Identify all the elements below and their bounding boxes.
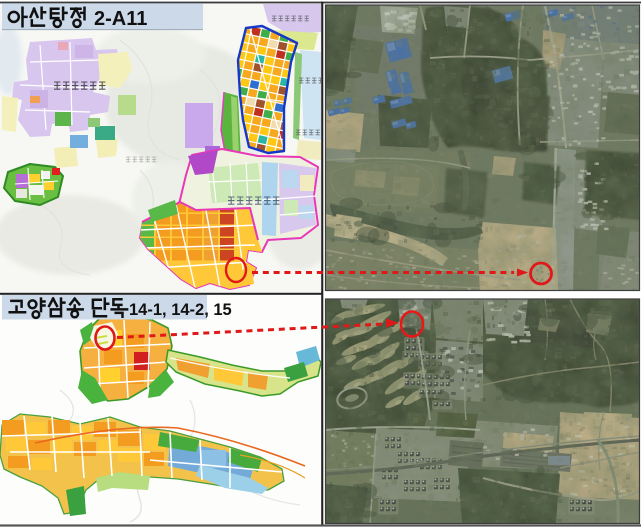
svg-text:2-A11: 2-A11 [94,8,147,30]
svg-text:14-1, 14-2, 15: 14-1, 14-2, 15 [129,301,232,319]
